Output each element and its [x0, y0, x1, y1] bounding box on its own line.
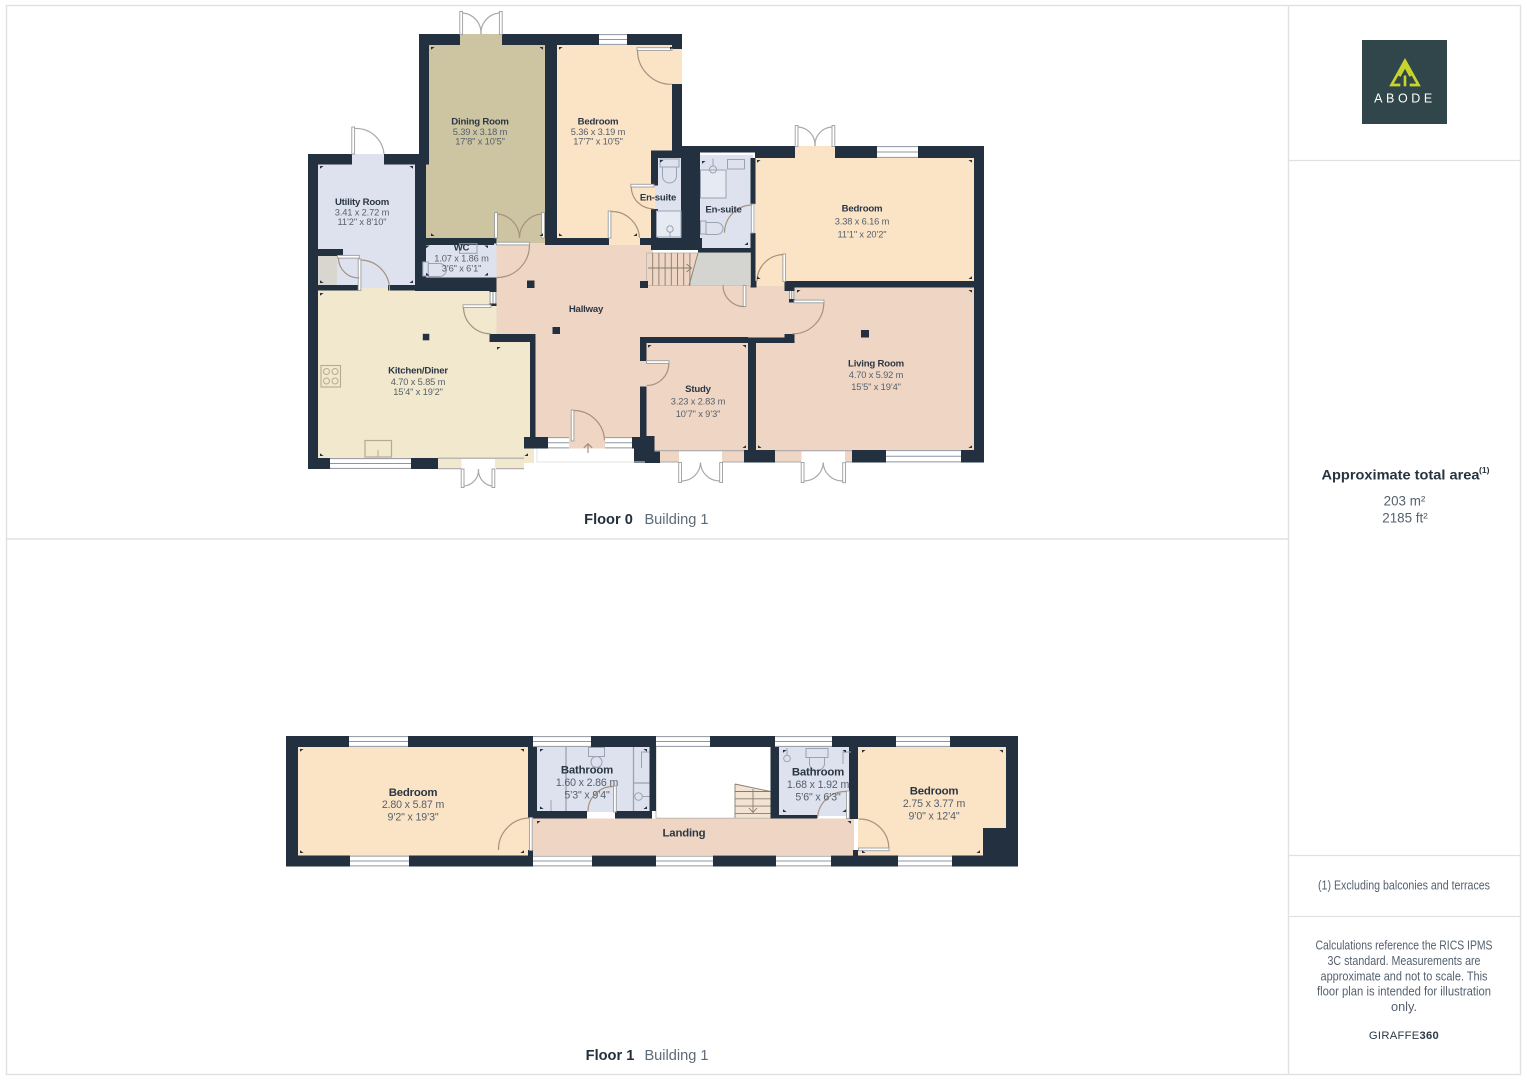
svg-text:Study: Study [685, 384, 712, 395]
svg-text:Hallway: Hallway [569, 304, 604, 315]
svg-text:15’5" x 19’4": 15’5" x 19’4" [851, 382, 901, 392]
svg-text:Kitchen/Diner: Kitchen/Diner [388, 365, 448, 376]
svg-text:9’2" x 19’3": 9’2" x 19’3" [387, 811, 438, 823]
svg-text:(1): (1) [1479, 465, 1490, 475]
svg-text:Bathroom: Bathroom [792, 767, 844, 779]
svg-text:1.60 x 2.86 m: 1.60 x 2.86 m [556, 777, 619, 789]
svg-text:ABODE: ABODE [1374, 92, 1436, 106]
svg-text:Landing: Landing [663, 828, 706, 840]
svg-text:3.38 x 6.16 m: 3.38 x 6.16 m [835, 216, 890, 226]
svg-text:2185 ft²: 2185 ft² [1382, 511, 1428, 526]
svg-text:Bedroom: Bedroom [842, 204, 883, 215]
svg-text:11’2" x 8’10": 11’2" x 8’10" [338, 217, 387, 227]
svg-text:5.36 x 3.19 m: 5.36 x 3.19 m [571, 127, 626, 137]
svg-text:15’4" x 19’2": 15’4" x 19’2" [393, 387, 443, 397]
svg-text:floor plan is intended for ill: floor plan is intended for illustration [1317, 984, 1491, 999]
svg-text:5’3" x 9’4": 5’3" x 9’4" [564, 790, 610, 802]
svg-text:En-suite: En-suite [705, 205, 741, 216]
svg-text:(1) Excluding balconies and te: (1) Excluding balconies and terraces [1318, 878, 1490, 893]
svg-text:WC: WC [454, 243, 470, 254]
svg-text:1.68 x 1.92 m: 1.68 x 1.92 m [787, 779, 850, 791]
svg-text:1.07 x 1.86 m: 1.07 x 1.86 m [434, 254, 489, 264]
svg-text:4.70 x 5.92 m: 4.70 x 5.92 m [849, 370, 904, 380]
svg-text:9’0" x 12’4": 9’0" x 12’4" [908, 811, 959, 823]
svg-text:only.: only. [1391, 999, 1417, 1014]
svg-text:3.41 x 2.72 m: 3.41 x 2.72 m [335, 207, 390, 217]
svg-text:17’8" x 10’5": 17’8" x 10’5" [455, 136, 505, 146]
svg-text:Bathroom: Bathroom [561, 765, 613, 777]
svg-text:Calculations reference the RIC: Calculations reference the RICS IPMS [1316, 938, 1493, 953]
svg-text:Approximate total area: Approximate total area [1322, 468, 1480, 483]
svg-text:3.23 x 2.83 m: 3.23 x 2.83 m [671, 397, 726, 407]
svg-text:approximate and not to scale.: approximate and not to scale. This [1321, 968, 1488, 983]
svg-text:Bedroom: Bedroom [389, 787, 438, 799]
svg-text:3’6" x 6’1": 3’6" x 6’1" [442, 263, 482, 273]
svg-text:203 m²: 203 m² [1384, 494, 1426, 509]
svg-text:11’1" x 20’2": 11’1" x 20’2" [838, 229, 887, 239]
svg-text:Floor 0: Floor 0 [584, 512, 633, 528]
svg-text:En-suite: En-suite [640, 193, 676, 204]
svg-text:Bedroom: Bedroom [910, 786, 959, 798]
svg-text:5.39 x 3.18 m: 5.39 x 3.18 m [453, 127, 508, 137]
svg-text:5’6" x 6’3": 5’6" x 6’3" [795, 792, 841, 804]
svg-text:2.75 x 3.77 m: 2.75 x 3.77 m [903, 798, 966, 810]
svg-text:17’7" x 10’5": 17’7" x 10’5" [573, 136, 623, 146]
svg-text:4.70 x 5.85 m: 4.70 x 5.85 m [391, 377, 446, 387]
svg-text:Floor 1: Floor 1 [586, 1048, 635, 1064]
svg-text:3C standard. Measurements are: 3C standard. Measurements are [1328, 953, 1481, 968]
svg-text:GIRAFFE360: GIRAFFE360 [1369, 1030, 1439, 1042]
svg-text:Living Room: Living Room [848, 359, 904, 370]
svg-text:Building 1: Building 1 [644, 1048, 708, 1064]
svg-text:2.80 x 5.87 m: 2.80 x 5.87 m [382, 799, 445, 811]
svg-text:Building 1: Building 1 [644, 512, 708, 528]
svg-text:10’7" x 9’3": 10’7" x 9’3" [676, 409, 721, 419]
